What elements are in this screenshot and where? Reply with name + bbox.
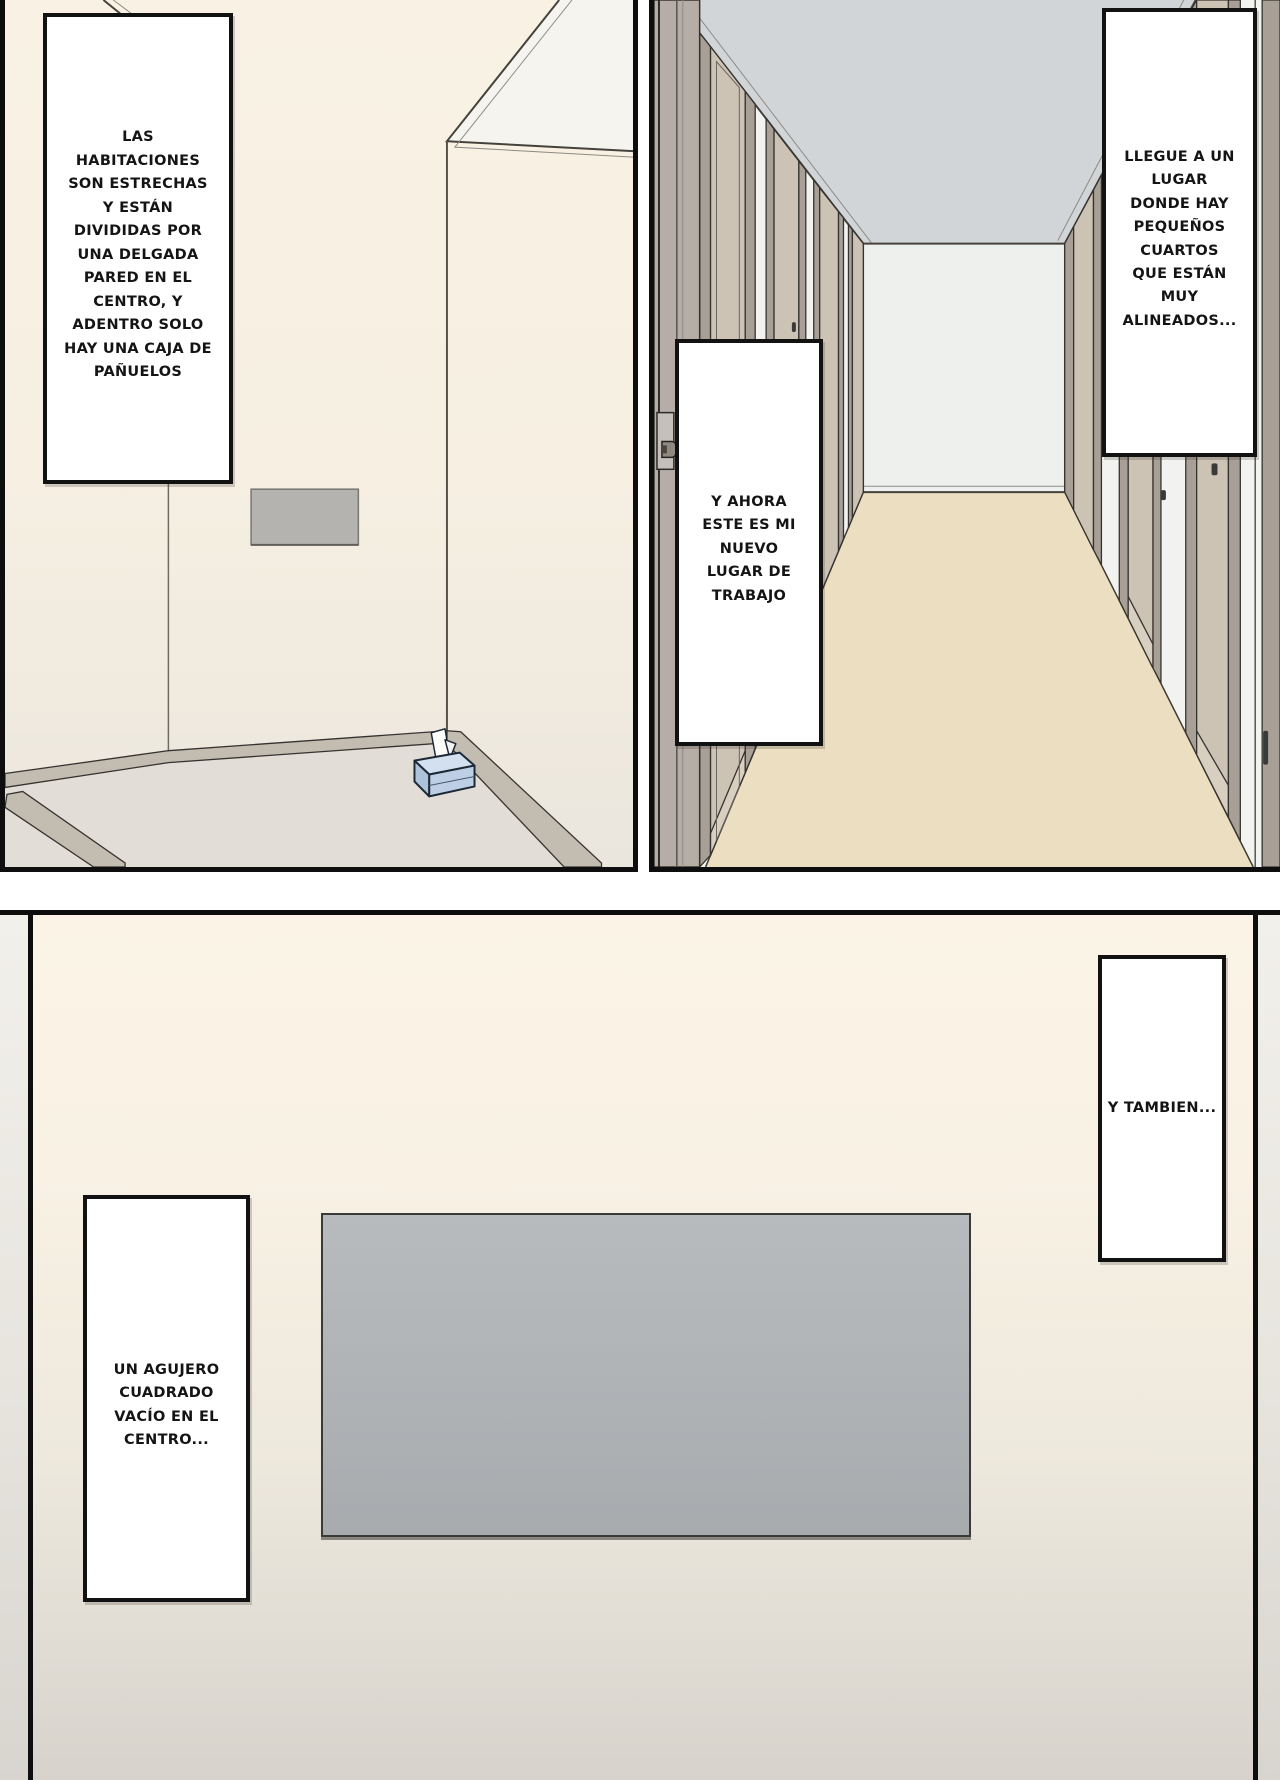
right-door-handle-2-icon <box>1161 490 1166 500</box>
caption-rooms-text: LAS HABITACIONES SON ESTRECHAS Y ESTÁN D… <box>62 122 214 388</box>
caption-also-text: Y TAMBIEN... <box>1106 1093 1219 1124</box>
hallway-back-wall <box>863 244 1064 493</box>
right-door-4 <box>1074 190 1094 550</box>
right-door-handle-3-icon <box>1263 731 1268 765</box>
left-door-handle-2-icon <box>792 322 796 332</box>
caption-workplace-text: Y AHORA ESTE ES MI NUEVO LUGAR DE TRABAJ… <box>700 487 797 612</box>
caption-box-rooms: LAS HABITACIONES SON ESTRECHAS Y ESTÁN D… <box>43 13 233 484</box>
caption-arrival-text: LLEGUE A UN LUGAR DONDE HAY PEQUEÑOS CUA… <box>1120 142 1238 338</box>
caption-box-arrival: LLEGUE A UN LUGAR DONDE HAY PEQUEÑOS CUA… <box>1102 8 1257 457</box>
left-door-4 <box>852 230 863 518</box>
square-hole <box>321 1213 971 1537</box>
caption-box-hole: UN AGUJERO CUADRADO VACÍO EN EL CENTRO..… <box>83 1195 250 1602</box>
caption-hole-text: UN AGUJERO CUADRADO VACÍO EN EL CENTRO..… <box>112 1355 222 1457</box>
door-latch-icon <box>662 445 667 453</box>
room-wall-hole <box>251 489 358 545</box>
caption-box-workplace: Y AHORA ESTE ES MI NUEVO LUGAR DE TRABAJ… <box>675 339 823 746</box>
comic-page: LAS HABITACIONES SON ESTRECHAS Y ESTÁN D… <box>0 0 1280 1780</box>
right-door-handle-icon <box>1212 463 1218 475</box>
caption-box-also: Y TAMBIEN... <box>1098 955 1226 1262</box>
